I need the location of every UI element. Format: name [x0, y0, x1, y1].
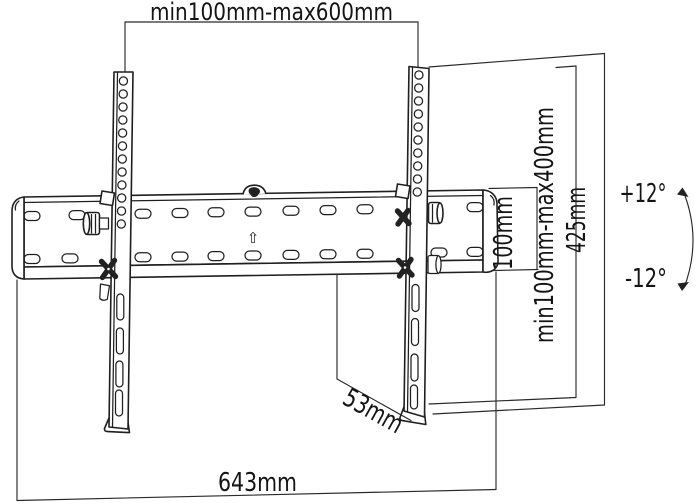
wall-mount-diagram: ⇧	[0, 0, 700, 504]
right-tilt-lock-knob	[429, 203, 444, 224]
label-tilt-up: +12°	[620, 179, 667, 209]
right-bracket-hook	[396, 184, 411, 199]
label-bracket-height: 425mm	[562, 187, 592, 253]
label-vesa-height-range: min100mm-max400mm	[530, 107, 560, 343]
wall-plate-left-endcap	[12, 197, 24, 279]
left-bracket-hook	[100, 191, 115, 206]
label-tilt-down: -12°	[625, 264, 667, 294]
up-arrow-icon: ⇧	[247, 229, 260, 247]
label-wall-plate-height: 100mm	[489, 196, 519, 270]
left-bracket-lower-hook	[100, 284, 110, 300]
diagram-canvas: ⇧	[0, 0, 700, 504]
label-vesa-width-range: min100mm-max600mm	[150, 0, 393, 26]
label-wall-plate-width: 643mm	[218, 468, 297, 498]
left-bracket-body	[109, 72, 133, 429]
